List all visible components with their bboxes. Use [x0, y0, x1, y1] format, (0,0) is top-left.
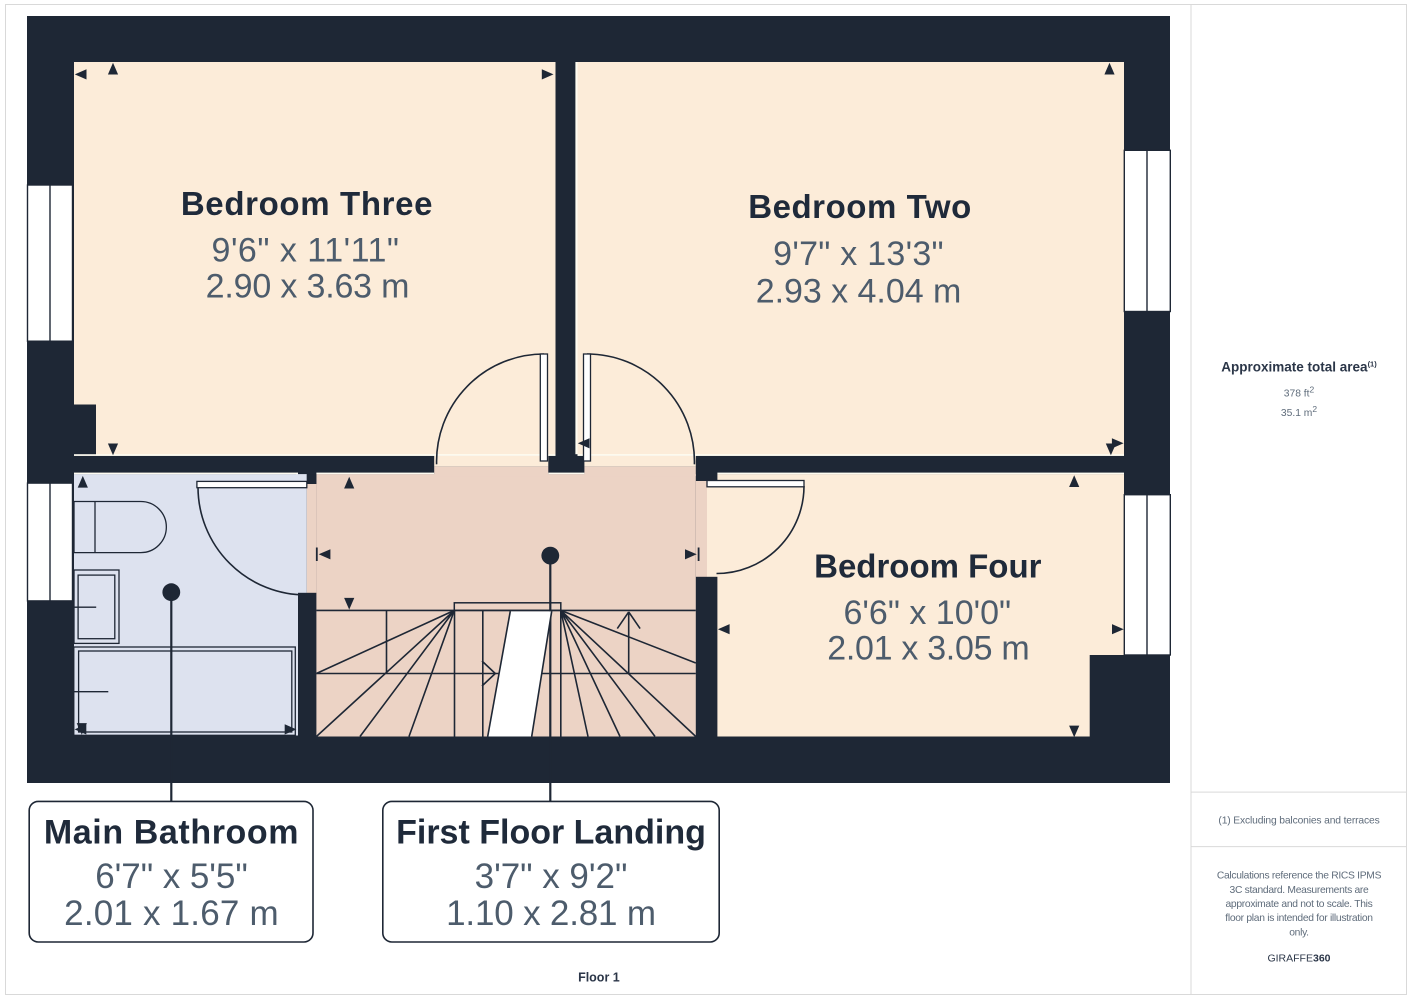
- svg-text:GIRAFFE360: GIRAFFE360: [1267, 952, 1330, 964]
- svg-text:First Floor Landing: First Floor Landing: [396, 814, 706, 852]
- svg-text:6'6" x 10'0": 6'6" x 10'0": [844, 594, 1012, 632]
- svg-text:Main Bathroom: Main Bathroom: [44, 814, 299, 852]
- svg-text:floor plan is intended for ill: floor plan is intended for illustration: [1225, 913, 1373, 924]
- svg-text:9'6" x 11'11": 9'6" x 11'11": [212, 231, 400, 269]
- svg-text:(1) Excluding balconies and te: (1) Excluding balconies and terraces: [1218, 816, 1379, 827]
- svg-text:Approximate total area(1): Approximate total area(1): [1221, 360, 1377, 375]
- svg-text:3C standard. Measurements are: 3C standard. Measurements are: [1230, 885, 1370, 896]
- svg-text:Bedroom Two: Bedroom Two: [748, 188, 972, 225]
- svg-text:Floor 1: Floor 1: [578, 970, 620, 984]
- svg-text:Bedroom Three: Bedroom Three: [181, 185, 433, 222]
- svg-text:9'7" x 13'3": 9'7" x 13'3": [773, 235, 944, 273]
- svg-text:2.01 x 3.05 m: 2.01 x 3.05 m: [827, 630, 1029, 668]
- svg-text:2.93 x 4.04 m: 2.93 x 4.04 m: [756, 273, 962, 311]
- svg-text:2.90 x 3.63 m: 2.90 x 3.63 m: [206, 267, 410, 305]
- svg-text:1.10 x 2.81 m: 1.10 x 2.81 m: [446, 894, 656, 933]
- svg-text:Calculations reference the RIC: Calculations reference the RICS IPMS: [1217, 871, 1382, 882]
- svg-text:Bedroom Four: Bedroom Four: [814, 548, 1041, 585]
- svg-text:only.: only.: [1289, 927, 1309, 938]
- svg-text:approximate and not to scale.: approximate and not to scale. This: [1225, 899, 1372, 910]
- svg-text:3'7" x 9'2": 3'7" x 9'2": [475, 857, 628, 896]
- svg-text:2.01 x 1.67 m: 2.01 x 1.67 m: [64, 894, 279, 933]
- svg-text:6'7" x 5'5": 6'7" x 5'5": [95, 857, 247, 896]
